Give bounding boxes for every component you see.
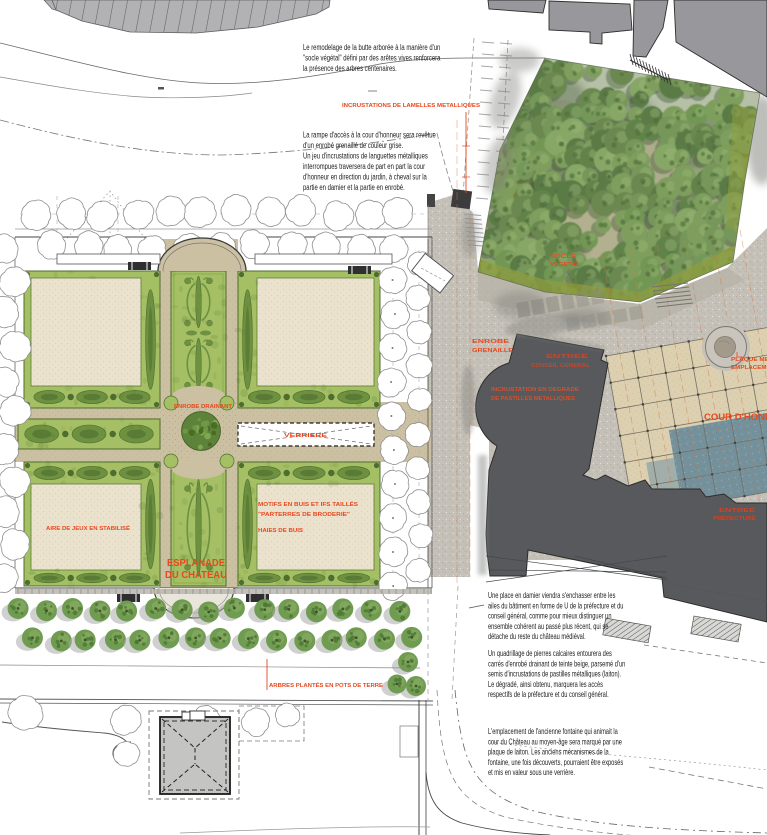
svg-text:ENROBE DRAINANT: ENROBE DRAINANT <box>174 404 232 410</box>
svg-text:GRENAILLE: GRENAILLE <box>472 348 513 354</box>
svg-text:interrompues traversera de par: interrompues traversera de part en part … <box>303 163 426 171</box>
svg-text:carrés d'enrobé drainant de te: carrés d'enrobé drainant de teinte beige… <box>488 661 625 669</box>
svg-text:plaque de laiton. Les anciens: plaque de laiton. Les anciens mécanismes… <box>488 749 609 757</box>
svg-text:ensemble cohérent au passé plu: ensemble cohérent au passé plus récent, … <box>488 623 608 631</box>
svg-text:CONSEIL GENERAL: CONSEIL GENERAL <box>531 363 590 369</box>
svg-text:DE PASTILLES METALLIQUES: DE PASTILLES METALLIQUES <box>491 396 575 402</box>
svg-text:INCRUSTATIONS DE LAMELLES META: INCRUSTATIONS DE LAMELLES METALLIQUES <box>342 103 480 109</box>
svg-text:AIRE DE JEUX EN STABILISÉ: AIRE DE JEUX EN STABILISÉ <box>46 524 130 532</box>
svg-text:conseil général, comme pour mi: conseil général, comme pour mieux distin… <box>488 613 612 621</box>
svg-text:"socle végétal" défini par des: "socle végétal" défini par des arêtes vi… <box>303 55 440 63</box>
svg-text:la présence des arbres centena: la présence des arbres centenaires. <box>303 65 397 73</box>
svg-text:PREFECTURE: PREFECTURE <box>713 516 756 522</box>
svg-text:Une place en damier viendra s': Une place en damier viendra s'enchasser … <box>488 592 616 600</box>
svg-text:VEGETAL: VEGETAL <box>550 262 581 268</box>
svg-text:La rampe d'accès à la cour d'h: La rampe d'accès à la cour d'honneur ser… <box>303 132 436 140</box>
svg-text:Le remodelage de la butte arbo: Le remodelage de la butte arborée à la m… <box>303 44 440 52</box>
svg-text:ENTREE: ENTREE <box>546 354 588 360</box>
svg-text:partie en damier et la partie: partie en damier et la partie en enrobé. <box>303 184 405 192</box>
svg-text:VERRIERE: VERRIERE <box>284 433 327 439</box>
svg-text:et mis en valeur sous une verr: et mis en valeur sous une verrière. <box>488 769 575 777</box>
svg-text:d'honneur en direction du jard: d'honneur en direction du jardin, à chev… <box>303 174 427 182</box>
svg-text:respectifs de la préfecture et: respectifs de la préfecture et du consei… <box>488 691 609 699</box>
svg-text:ENTREE: ENTREE <box>719 508 755 514</box>
svg-text:ESPLANADE: ESPLANADE <box>167 558 225 569</box>
svg-text:d'un enrobé grenaillé de coule: d'un enrobé grenaillé de couleur grise. <box>303 142 403 150</box>
svg-text:EMPLACEMENT: EMPLACEMENT <box>731 365 767 371</box>
svg-text:COUR D'HONNEUR: COUR D'HONNEUR <box>704 412 767 423</box>
svg-text:DU CHATEAU: DU CHATEAU <box>165 570 227 581</box>
svg-text:fontaine, une fois découverts,: fontaine, une fois découverts, pourraien… <box>488 759 624 767</box>
svg-text:ARBRES PLANTÉS EN POTS DE TERR: ARBRES PLANTÉS EN POTS DE TERRE <box>269 681 383 689</box>
svg-text:détache du reste du château mé: détache du reste du château médiéval. <box>488 633 586 641</box>
svg-text:Le dégradé, ainsi obtenu, marq: Le dégradé, ainsi obtenu, marquera les a… <box>488 681 603 689</box>
svg-text:cour du Château au moyen-âge s: cour du Château au moyen-âge sera marqué… <box>488 739 622 747</box>
svg-text:ENROBE: ENROBE <box>472 339 509 345</box>
svg-text:ailes du bâtiment en forme de: ailes du bâtiment en forme de U de la pr… <box>488 603 624 611</box>
svg-text:"PARTERRES DE BRODERIE": "PARTERRES DE BRODERIE" <box>258 512 350 518</box>
svg-text:MOTIFS EN BUIS ET IFS TAILLÉS: MOTIFS EN BUIS ET IFS TAILLÉS <box>258 500 358 508</box>
svg-text:INCRUSTATION EN DEGRADE: INCRUSTATION EN DEGRADE <box>491 387 579 393</box>
svg-text:HAIES DE BUIS: HAIES DE BUIS <box>258 528 303 534</box>
svg-text:semis d'incrustations de pasti: semis d'incrustations de pastilles métal… <box>488 671 621 679</box>
svg-text:Un quadrillage de pierres calc: Un quadrillage de pierres calcaires ento… <box>488 650 612 658</box>
svg-text:Un jeu d'incrustations de lang: Un jeu d'incrustations de languettes mét… <box>303 153 428 161</box>
svg-text:SOCLE: SOCLE <box>550 254 576 260</box>
svg-text:L'emplacement de l'ancienne fo: L'emplacement de l'ancienne fontaine qui… <box>488 728 618 736</box>
svg-text:PLAQUE METAL: PLAQUE METAL <box>731 357 767 363</box>
